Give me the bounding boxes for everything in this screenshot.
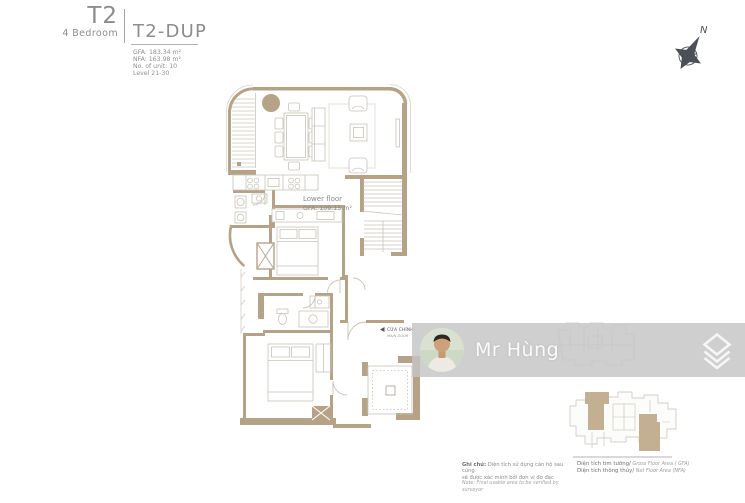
note-line-en: Note: Final usable area to be verified b… [462, 481, 570, 494]
agent-avatar [420, 328, 464, 372]
window-wall [241, 269, 245, 334]
floor-label: Lower floor [303, 195, 342, 203]
spiral-stair-band [231, 90, 256, 168]
closet [312, 406, 330, 420]
floor-area-label: GFA: 109.15 m² [303, 205, 352, 212]
watermark-bar: Mr Hùng [412, 323, 745, 377]
lift-shaft [257, 243, 274, 269]
keyplan-lower [570, 392, 676, 451]
note-line-1: Ghi chú: Diện tích sử dụng căn hộ sau cù… [462, 462, 570, 475]
elevator-lobby [368, 366, 412, 414]
legend-note: Ghi chú: Diện tích sử dụng căn hộ sau cù… [462, 462, 570, 494]
brand-diamond-icon [702, 332, 732, 370]
highlighted-unit-2 [639, 414, 660, 451]
agent-name: Mr Hùng [475, 339, 559, 361]
main-door-label: CỬA CHÍNH [387, 325, 414, 333]
round-column [262, 94, 280, 112]
main-door-arrow-icon [380, 327, 385, 332]
avatar-image [420, 328, 464, 372]
staircase [362, 182, 403, 252]
floor-plan-drawing: Lower floor GFA: 109.15 m² CỬA CHÍNH MAI… [0, 0, 745, 503]
main-door-sublabel: MAIN DOOR [387, 334, 409, 338]
nfa-legend: Diện tích thông thủy/ Net Floor Area (NF… [577, 468, 690, 475]
legend-areas: Diện tích tim tường/ Gross Floor Area ( … [577, 461, 690, 475]
floorplan-page: T2 4 Bedroom T2-DUP GFA: 183.34 m² NFA: … [0, 0, 745, 503]
main-door-swing [348, 322, 366, 340]
